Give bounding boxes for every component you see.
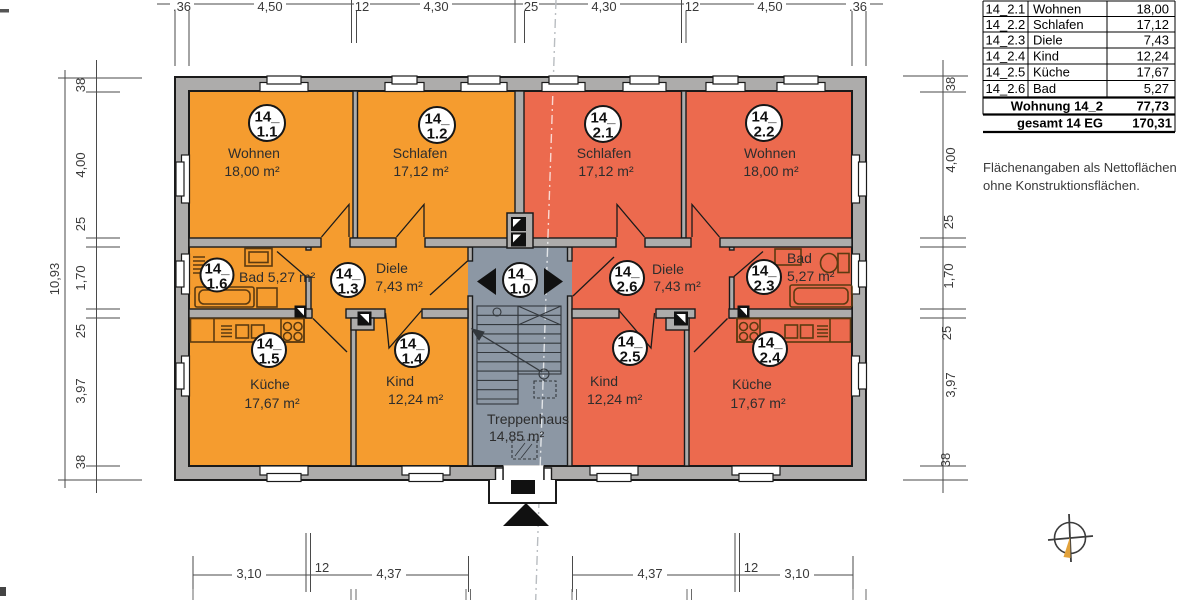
svg-text:38: 38 bbox=[73, 78, 88, 92]
svg-text:1.1: 1.1 bbox=[257, 124, 278, 141]
svg-text:17,67 m²: 17,67 m² bbox=[244, 395, 300, 411]
svg-text:4,37: 4,37 bbox=[637, 566, 662, 581]
svg-text:4,00: 4,00 bbox=[943, 147, 958, 172]
svg-text:12: 12 bbox=[315, 560, 329, 575]
svg-text:Bad 5,27 m²: Bad 5,27 m² bbox=[239, 269, 316, 285]
svg-text:7,43 m²: 7,43 m² bbox=[653, 278, 701, 294]
svg-text:4,00: 4,00 bbox=[73, 152, 88, 177]
svg-text:17,12: 17,12 bbox=[1136, 17, 1169, 32]
svg-text:Schlafen: Schlafen bbox=[1033, 17, 1084, 32]
svg-text:14,85 m²: 14,85 m² bbox=[489, 428, 545, 444]
svg-text:4,30: 4,30 bbox=[423, 0, 448, 14]
svg-text:ohne Konstruktionsflächen.: ohne Konstruktionsflächen. bbox=[983, 178, 1140, 193]
svg-text:38: 38 bbox=[73, 455, 88, 469]
svg-text:25: 25 bbox=[73, 217, 88, 231]
svg-text:1.6: 1.6 bbox=[207, 276, 228, 293]
svg-text:1.5: 1.5 bbox=[259, 351, 280, 368]
svg-text:gesamt 14 EG: gesamt 14 EG bbox=[1017, 115, 1103, 130]
svg-text:Bad: Bad bbox=[1033, 81, 1056, 96]
svg-text:Schlafen: Schlafen bbox=[393, 145, 447, 161]
svg-text:4,37: 4,37 bbox=[376, 566, 401, 581]
svg-text:Diele: Diele bbox=[1033, 32, 1063, 47]
svg-text:12,24 m²: 12,24 m² bbox=[388, 391, 444, 407]
svg-text:3,97: 3,97 bbox=[73, 378, 88, 403]
svg-text:2.4: 2.4 bbox=[760, 350, 782, 367]
svg-text:77,73: 77,73 bbox=[1136, 98, 1169, 113]
svg-text:4,50: 4,50 bbox=[757, 0, 782, 14]
svg-text:Wohnen: Wohnen bbox=[1033, 1, 1081, 16]
svg-text:7,43 m²: 7,43 m² bbox=[375, 278, 423, 294]
svg-text:18,00 m²: 18,00 m² bbox=[224, 163, 280, 179]
svg-text:14_2.4: 14_2.4 bbox=[986, 48, 1026, 63]
svg-text:Wohnen: Wohnen bbox=[744, 145, 796, 161]
svg-text:2.6: 2.6 bbox=[617, 279, 638, 296]
svg-text:38: 38 bbox=[938, 453, 953, 467]
svg-text:3,10: 3,10 bbox=[236, 566, 261, 581]
svg-text:4,50: 4,50 bbox=[257, 0, 282, 14]
svg-text:1,70: 1,70 bbox=[941, 263, 956, 288]
svg-text:17,67: 17,67 bbox=[1136, 64, 1169, 79]
svg-text:Küche: Küche bbox=[732, 376, 772, 392]
svg-text:7,43: 7,43 bbox=[1144, 32, 1169, 47]
svg-text:17,67 m²: 17,67 m² bbox=[730, 395, 786, 411]
svg-text:Flächenangaben als Nettofläche: Flächenangaben als Nettoflächen bbox=[983, 160, 1177, 175]
svg-text:14_2.6: 14_2.6 bbox=[986, 81, 1026, 96]
svg-text:2.5: 2.5 bbox=[620, 349, 641, 366]
svg-text:25: 25 bbox=[524, 0, 538, 14]
svg-text:5,27 m²: 5,27 m² bbox=[787, 268, 835, 284]
svg-text:18,00: 18,00 bbox=[1136, 1, 1169, 16]
svg-text:Diele: Diele bbox=[652, 261, 684, 277]
svg-text:14_2.3: 14_2.3 bbox=[986, 32, 1026, 47]
svg-text:3,10: 3,10 bbox=[784, 566, 809, 581]
svg-text:25: 25 bbox=[73, 324, 88, 338]
svg-text:5,27: 5,27 bbox=[1144, 81, 1169, 96]
svg-text:Kind: Kind bbox=[1033, 48, 1059, 63]
svg-text:Bad: Bad bbox=[787, 250, 812, 266]
svg-text:14_2.5: 14_2.5 bbox=[986, 64, 1026, 79]
svg-text:25: 25 bbox=[941, 215, 956, 229]
svg-text:12,24 m²: 12,24 m² bbox=[587, 391, 643, 407]
svg-text:Diele: Diele bbox=[376, 260, 408, 276]
svg-text:25: 25 bbox=[939, 326, 954, 340]
svg-text:170,31: 170,31 bbox=[1132, 115, 1172, 130]
svg-text:Treppenhaus: Treppenhaus bbox=[487, 411, 569, 427]
svg-text:1,70: 1,70 bbox=[73, 265, 88, 290]
svg-text:.36: .36 bbox=[173, 0, 191, 14]
svg-text:Küche: Küche bbox=[1033, 64, 1070, 79]
svg-text:17,12 m²: 17,12 m² bbox=[578, 163, 634, 179]
svg-text:10,93: 10,93 bbox=[47, 263, 62, 296]
svg-text:Küche: Küche bbox=[250, 376, 290, 392]
svg-text:14_2.1: 14_2.1 bbox=[986, 1, 1026, 16]
svg-text:Schlafen: Schlafen bbox=[577, 145, 631, 161]
svg-text:2.1: 2.1 bbox=[593, 125, 614, 142]
svg-text:1.3: 1.3 bbox=[338, 281, 359, 298]
svg-text:2.3: 2.3 bbox=[754, 278, 775, 295]
svg-text:1.2: 1.2 bbox=[427, 126, 448, 143]
svg-text:38: 38 bbox=[943, 77, 958, 91]
svg-text:17,12 m²: 17,12 m² bbox=[393, 163, 449, 179]
svg-text:14_2.2: 14_2.2 bbox=[986, 17, 1026, 32]
svg-text:Kind: Kind bbox=[590, 373, 618, 389]
svg-text:12: 12 bbox=[355, 0, 369, 14]
svg-text:12: 12 bbox=[744, 560, 758, 575]
svg-text:Wohnung 14_2: Wohnung 14_2 bbox=[1011, 98, 1103, 113]
svg-text:4,30: 4,30 bbox=[591, 0, 616, 14]
svg-text:1.4: 1.4 bbox=[402, 351, 424, 368]
svg-text:Kind: Kind bbox=[386, 373, 414, 389]
svg-text:12,24: 12,24 bbox=[1136, 48, 1169, 63]
svg-text:12: 12 bbox=[685, 0, 699, 14]
svg-text:Wohnen: Wohnen bbox=[228, 145, 280, 161]
svg-text:3,97: 3,97 bbox=[943, 372, 958, 397]
svg-text:18,00 m²: 18,00 m² bbox=[743, 163, 799, 179]
svg-text:.36: .36 bbox=[849, 0, 867, 14]
svg-text:1.0: 1.0 bbox=[510, 281, 531, 298]
svg-text:2.2: 2.2 bbox=[754, 124, 775, 141]
